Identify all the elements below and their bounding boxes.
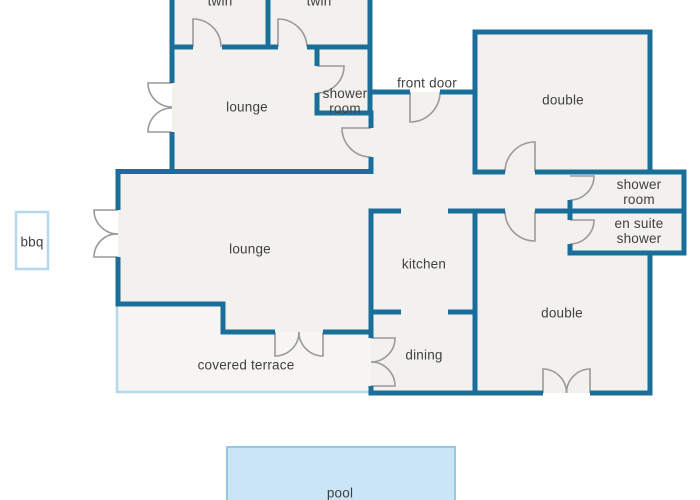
room-label-covered-terrace: covered terrace [198, 357, 295, 372]
floorplan-drawing [0, 0, 700, 500]
room-label-twin-right: twin [307, 0, 332, 9]
door-arc-lounge-french-top [94, 210, 118, 234]
label-front-door: front door [397, 75, 457, 90]
room-label-double-bottom: double [541, 305, 583, 320]
room-label-lounge-main: lounge [229, 241, 271, 256]
door-arc-upper-lounge-french-top [148, 83, 172, 107]
door-arc-lounge-french-bottom [94, 234, 118, 257]
room-label-dining: dining [405, 347, 442, 362]
room-label-shower-room-right: shower room [610, 177, 668, 207]
floor-hall [371, 92, 475, 171]
room-label-shower-room-top: shower room [318, 86, 372, 116]
label-bbq: bbq [20, 234, 43, 249]
room-label-twin-left: twin [208, 0, 233, 9]
door-arc-upper-lounge-french-bottom [148, 108, 172, 132]
floorplan-page: twin twin lounge shower room front door … [0, 0, 700, 500]
floor-areas [118, 0, 684, 393]
room-label-en-suite-shower: en suite shower [608, 216, 670, 246]
floor-corridor [371, 171, 570, 212]
floor-kitchen-dining [371, 210, 475, 393]
floor-lounge [118, 171, 371, 304]
room-label-kitchen: kitchen [402, 256, 446, 271]
floor-lounge-step [223, 304, 371, 332]
label-pool: pool [327, 485, 353, 500]
room-label-lounge-upper: lounge [226, 99, 268, 114]
room-label-double-top: double [542, 92, 584, 107]
